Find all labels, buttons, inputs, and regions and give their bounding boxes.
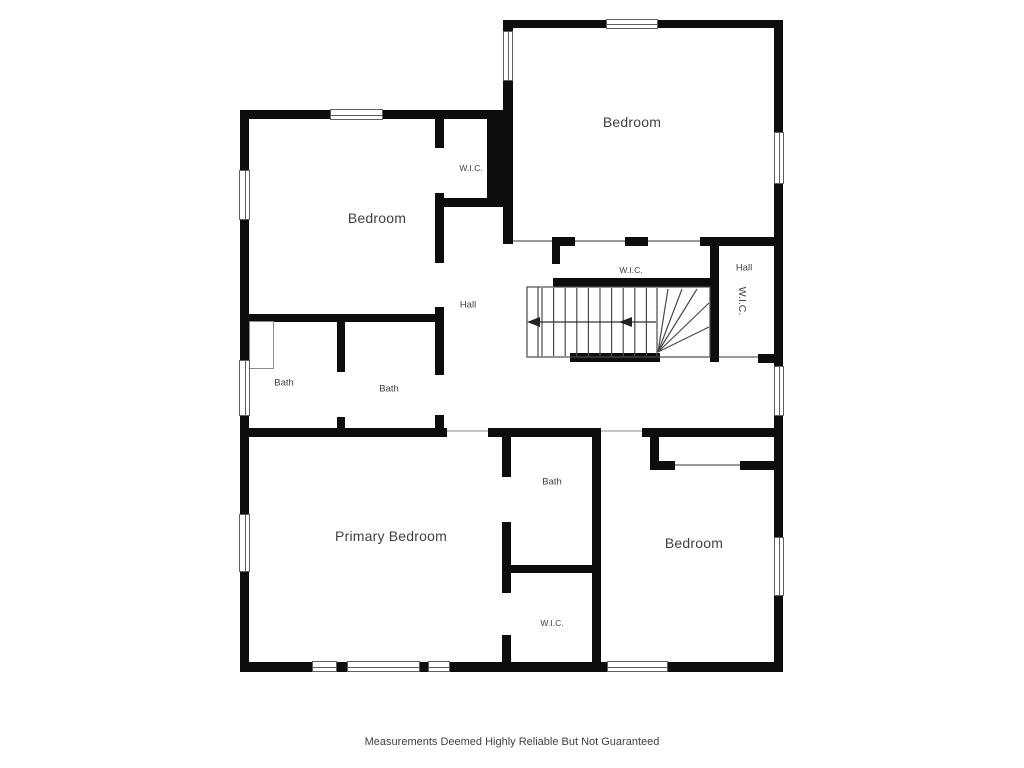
window-marker xyxy=(774,132,784,184)
window-marker xyxy=(239,360,250,416)
window-marker xyxy=(312,661,337,672)
window-marker xyxy=(428,661,450,672)
room-label-bath-left: Bath xyxy=(274,378,294,389)
wall-hall-west-b xyxy=(435,193,444,263)
wall-lower-top-c xyxy=(642,428,783,437)
room-label-wic-lower: W.I.C. xyxy=(540,618,563,628)
window-marker xyxy=(774,366,784,416)
door-primary-bedroom xyxy=(447,430,488,432)
window-marker xyxy=(239,170,250,220)
wall-bath-wic-divider xyxy=(502,565,601,573)
window-marker xyxy=(774,537,784,596)
room-label-wic-right: W.I.C. xyxy=(736,287,748,316)
window-marker xyxy=(503,31,513,81)
room-label-wic-middle: W.I.C. xyxy=(619,265,642,275)
wall-bath-divider-a xyxy=(337,314,345,372)
window-marker xyxy=(347,661,420,672)
stair-direction-arrows xyxy=(527,317,656,327)
wall-midcol-left-c xyxy=(502,635,511,665)
wall-hall-west-a xyxy=(435,112,444,148)
wall-midcol-left-b xyxy=(502,522,511,593)
disclaimer-text: Measurements Deemed Highly Reliable But … xyxy=(0,736,1024,748)
wall-midcol-right xyxy=(592,428,601,672)
wall-closet-bottom-a xyxy=(650,461,675,470)
floor-plan: Bedroom Bedroom W.I.C. Hall W.I.C. Hall … xyxy=(0,0,1024,768)
shower-stall xyxy=(249,321,274,369)
staircase xyxy=(520,270,720,370)
room-label-hall-right: Hall xyxy=(736,263,752,274)
wall-lower-top-a xyxy=(240,428,447,437)
room-label-primary-bedroom: Primary Bedroom xyxy=(335,528,447,544)
closet-opening xyxy=(675,464,740,466)
column-opening xyxy=(719,356,758,358)
strip-opening-1 xyxy=(513,240,552,242)
room-label-bedroom-bottom-right: Bedroom xyxy=(665,535,723,551)
strip-opening-2 xyxy=(575,240,625,242)
wall-strip-jamb xyxy=(552,246,560,264)
stair-winders xyxy=(658,289,709,352)
door-bedroom-br xyxy=(597,430,642,432)
room-label-bedroom-top-right: Bedroom xyxy=(603,114,661,130)
wall-strip-top-a xyxy=(552,237,575,246)
strip-opening-3 xyxy=(648,240,700,242)
wall-midcol-left-a xyxy=(502,428,511,477)
wall-chimney-block xyxy=(487,118,513,207)
window-marker xyxy=(239,514,250,572)
room-label-bath-middle: Bath xyxy=(379,384,399,395)
room-label-hall-left: Hall xyxy=(460,300,476,311)
wall-column-bottom xyxy=(758,354,775,363)
wall-closet-bottom-b xyxy=(740,461,775,470)
room-label-bath-lower: Bath xyxy=(542,477,562,488)
window-marker xyxy=(606,19,658,29)
window-marker xyxy=(607,661,668,672)
room-label-bedroom-top-left: Bedroom xyxy=(348,210,406,226)
wall-strip-top-b xyxy=(625,237,648,246)
window-marker xyxy=(330,109,383,120)
room-label-wic-top-left: W.I.C. xyxy=(459,163,482,173)
wall-wic1-bottom xyxy=(441,198,513,207)
